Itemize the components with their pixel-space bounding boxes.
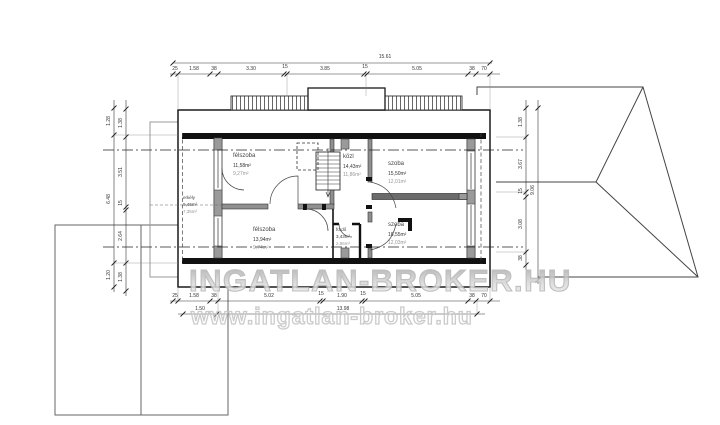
stairs (316, 148, 340, 197)
dim-label: 38 (211, 66, 217, 72)
dim-label: 3.08 (518, 219, 524, 229)
room-name: félszoba (233, 152, 255, 162)
dim-label: 25 (172, 66, 178, 72)
dim-label: 9.06 (530, 185, 536, 195)
room-area-reduced: 9,74m² (253, 244, 275, 252)
dim-label: 3.67 (518, 159, 524, 169)
room-name: félszoba (253, 226, 275, 236)
room-name: szoba (388, 160, 406, 170)
dim-label: 3.30 (246, 66, 256, 72)
dim-label: 15 (362, 64, 368, 70)
room-name: erkély (183, 194, 197, 201)
dim-label: 70 (481, 66, 487, 72)
room-label-szoba-top: szoba 15,50m² 12,01m² (388, 160, 406, 186)
room-label-kozl: közl 14,43m² 11,86m² (343, 153, 361, 179)
dim-label: 1.38 (118, 118, 124, 128)
room-label-felszoba-bottom: félszoba 13,94m² 9,74m² (253, 226, 275, 252)
room-area-reduced: 9,27m² (233, 170, 255, 178)
room-label-furdo: fürdő 3,43m² 2,96m² (336, 226, 350, 248)
room-area: 14,43m² (343, 163, 361, 171)
room-area-reduced: 7,35m² (183, 208, 197, 215)
dim-label: 38 (469, 66, 475, 72)
dim-label: 1.28 (106, 116, 112, 126)
dim-label: 2.64 (118, 231, 124, 241)
floor-plan-drawing (0, 0, 720, 425)
dim-label: 15 (118, 200, 124, 206)
room-area: 16,55m² (388, 231, 406, 239)
room-area: 3,43m² (336, 233, 350, 240)
room-area-reduced: 12,03m² (388, 239, 406, 247)
room-name: közl (343, 153, 361, 163)
room-area-reduced: 12,01m² (388, 178, 406, 186)
dim-label: 1.20 (106, 270, 112, 280)
dim-label: 15 (518, 188, 524, 194)
balcony-outline (150, 122, 178, 277)
dim-label: 15 (282, 64, 288, 70)
roof-plan (477, 87, 698, 277)
dim-label: 5.05 (412, 66, 422, 72)
room-area-reduced: 11,86m² (343, 171, 361, 179)
room-area: 11,58m² (233, 162, 255, 170)
room-label-felszoba-top: félszoba 11,58m² 9,27m² (233, 152, 255, 178)
dim-label: 3.85 (320, 66, 330, 72)
watermark-url: www.ingatlan-broker.hu (191, 303, 473, 330)
dim-label-total: 15.61 (379, 54, 392, 60)
dim-label: 1.38 (118, 272, 124, 282)
room-area: 15,50m² (388, 170, 406, 178)
watermark-title: INGATLAN-BROKER.HU (189, 263, 572, 299)
dim-label: 38 (518, 255, 524, 261)
room-area-reduced: 2,96m² (336, 240, 350, 247)
dim-label: 3.51 (118, 167, 124, 177)
room-area: 9,46m² (183, 201, 197, 208)
room-label-szoba-bottom: szoba 16,55m² 12,03m² (388, 221, 406, 247)
room-label-erkely: erkély 9,46m² 7,35m² (183, 194, 197, 216)
dim-label: 1.58 (189, 66, 199, 72)
room-area: 13,94m² (253, 236, 275, 244)
room-name: szoba (388, 221, 406, 231)
dim-label: 6.48 (106, 194, 112, 204)
dim-label: 25 (172, 293, 178, 299)
dim-label: 1.38 (518, 117, 524, 127)
room-name: fürdő (336, 226, 350, 233)
floor-plan-canvas: félszoba 11,58m² 9,27m² erkély 9,46m² 7,… (0, 0, 720, 425)
